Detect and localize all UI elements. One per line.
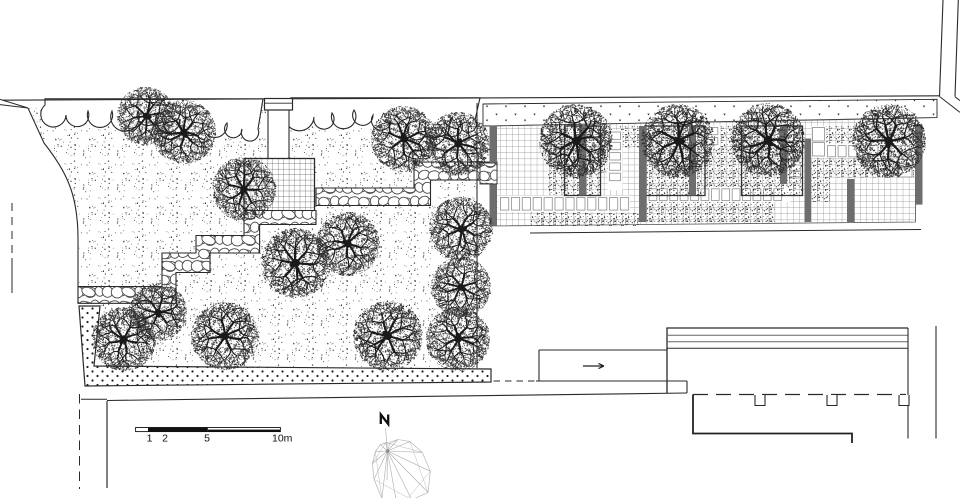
svg-text:2: 2	[162, 433, 168, 445]
svg-text:5: 5	[204, 433, 210, 445]
svg-text:1: 1	[147, 433, 153, 445]
svg-text:10m: 10m	[272, 433, 293, 445]
